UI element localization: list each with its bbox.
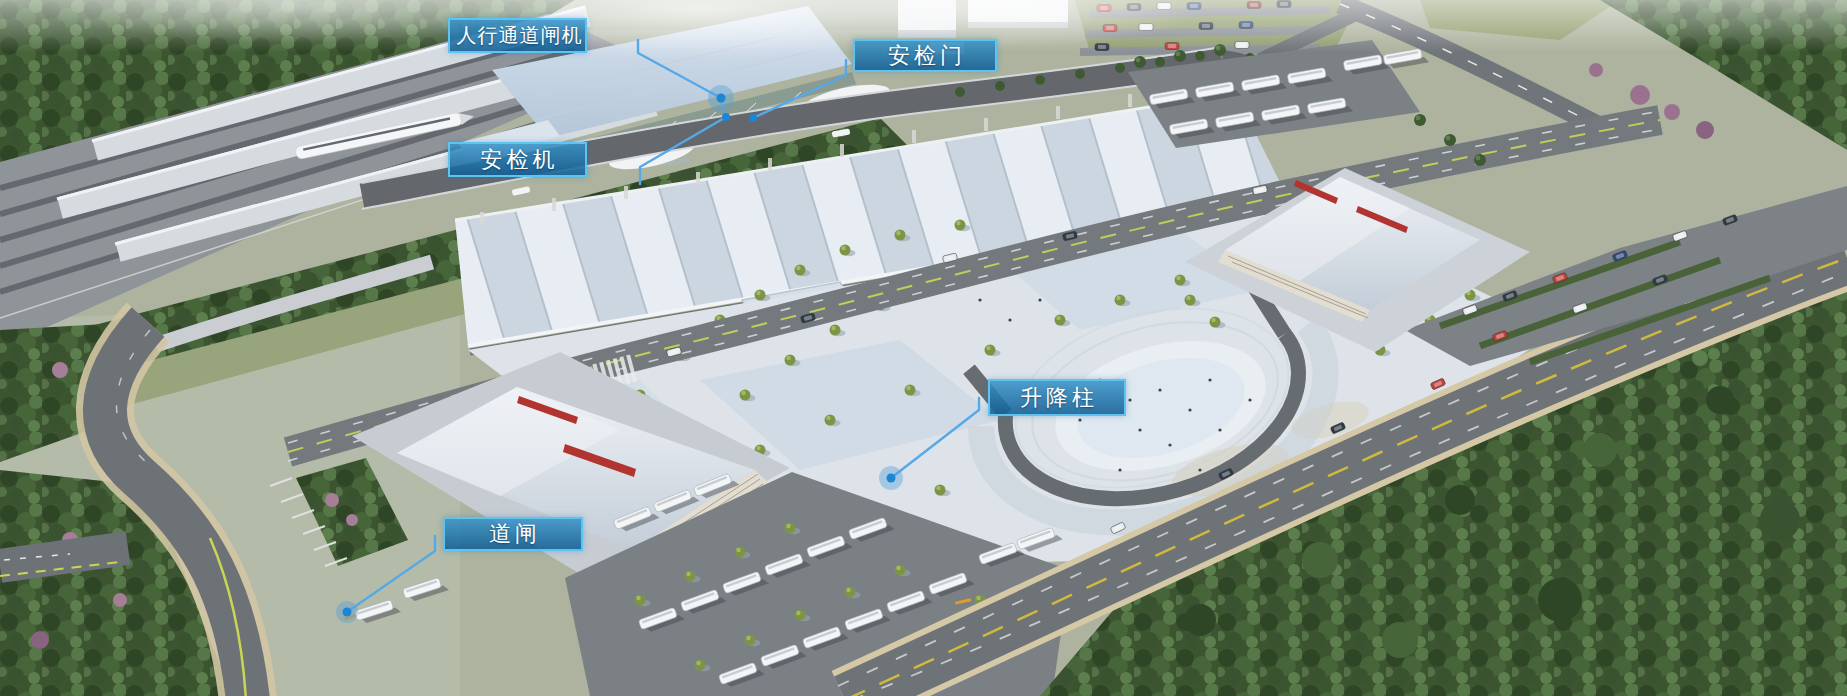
callout-label: 人行通道闸机 [457, 22, 583, 49]
marker-security-scanner [722, 113, 730, 121]
callout-label: 安检门 [888, 41, 966, 71]
callout-pedestrian-channel-gate: 人行通道闸机 [448, 18, 587, 53]
marker-pedestrian-gate [717, 94, 726, 103]
callout-lifting-bollard: 升降柱 [988, 379, 1126, 416]
marker-lifting-bollard [887, 474, 896, 483]
callout-security-scanner: 安检机 [448, 142, 587, 177]
aerial-station-scene: 人行通道闸机 安检门 安检机 升降柱 道闸 [0, 0, 1847, 696]
callout-label: 安检机 [481, 145, 559, 175]
marker-security-door [749, 114, 757, 122]
callout-barrier-gate: 道闸 [443, 517, 583, 551]
marker-barrier-gate [343, 608, 352, 617]
callout-security-door: 安检门 [853, 39, 997, 72]
callout-label: 升降柱 [1020, 383, 1098, 413]
callout-label: 道闸 [489, 519, 541, 549]
aerial-render [0, 0, 1847, 696]
